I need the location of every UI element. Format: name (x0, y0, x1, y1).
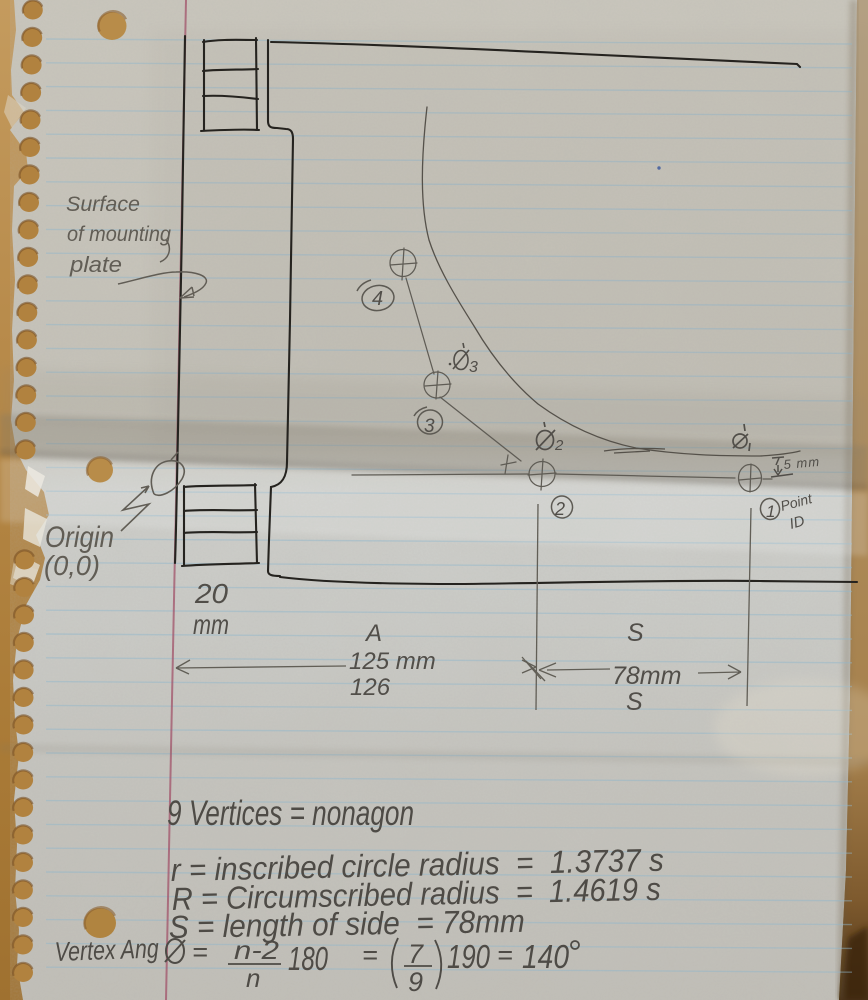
svg-text:mm: mm (193, 609, 229, 640)
svg-text:=: = (497, 940, 513, 970)
svg-text:4: 4 (372, 288, 383, 310)
svg-text:=: = (192, 937, 208, 967)
svg-text:20: 20 (194, 578, 228, 609)
svg-text:5 mm: 5 mm (783, 454, 821, 472)
svg-text:125 mm: 125 mm (349, 648, 436, 675)
svg-text:S: S (627, 619, 644, 647)
svg-text:Surface: Surface (66, 193, 140, 216)
svg-text:2: 2 (554, 499, 565, 519)
svg-text:Vertex Ang: Vertex Ang (54, 933, 159, 967)
svg-text:n: n (246, 963, 260, 993)
svg-text:1: 1 (766, 502, 775, 521)
svg-text:3: 3 (469, 359, 478, 376)
svg-text:A: A (364, 620, 382, 647)
svg-text:2: 2 (554, 437, 564, 454)
svg-text:3: 3 (424, 416, 435, 437)
svg-text:(0,0): (0,0) (44, 550, 100, 581)
svg-text:7: 7 (408, 939, 424, 969)
svg-text:plate: plate (69, 252, 122, 277)
svg-text:S: S (626, 688, 643, 716)
svg-text:180: 180 (288, 940, 328, 977)
svg-text:140: 140 (522, 938, 570, 975)
svg-text:n-2: n-2 (234, 935, 280, 965)
svg-text:78mm: 78mm (612, 662, 681, 690)
svg-text:190: 190 (447, 938, 491, 975)
svg-text:9: 9 (408, 967, 423, 997)
svg-text:=: = (362, 940, 378, 970)
svg-text:126: 126 (350, 674, 391, 701)
svg-text:9 Vertices = nonagon: 9 Vertices = nonagon (167, 794, 414, 833)
svg-text:of mounting: of mounting (67, 223, 171, 246)
